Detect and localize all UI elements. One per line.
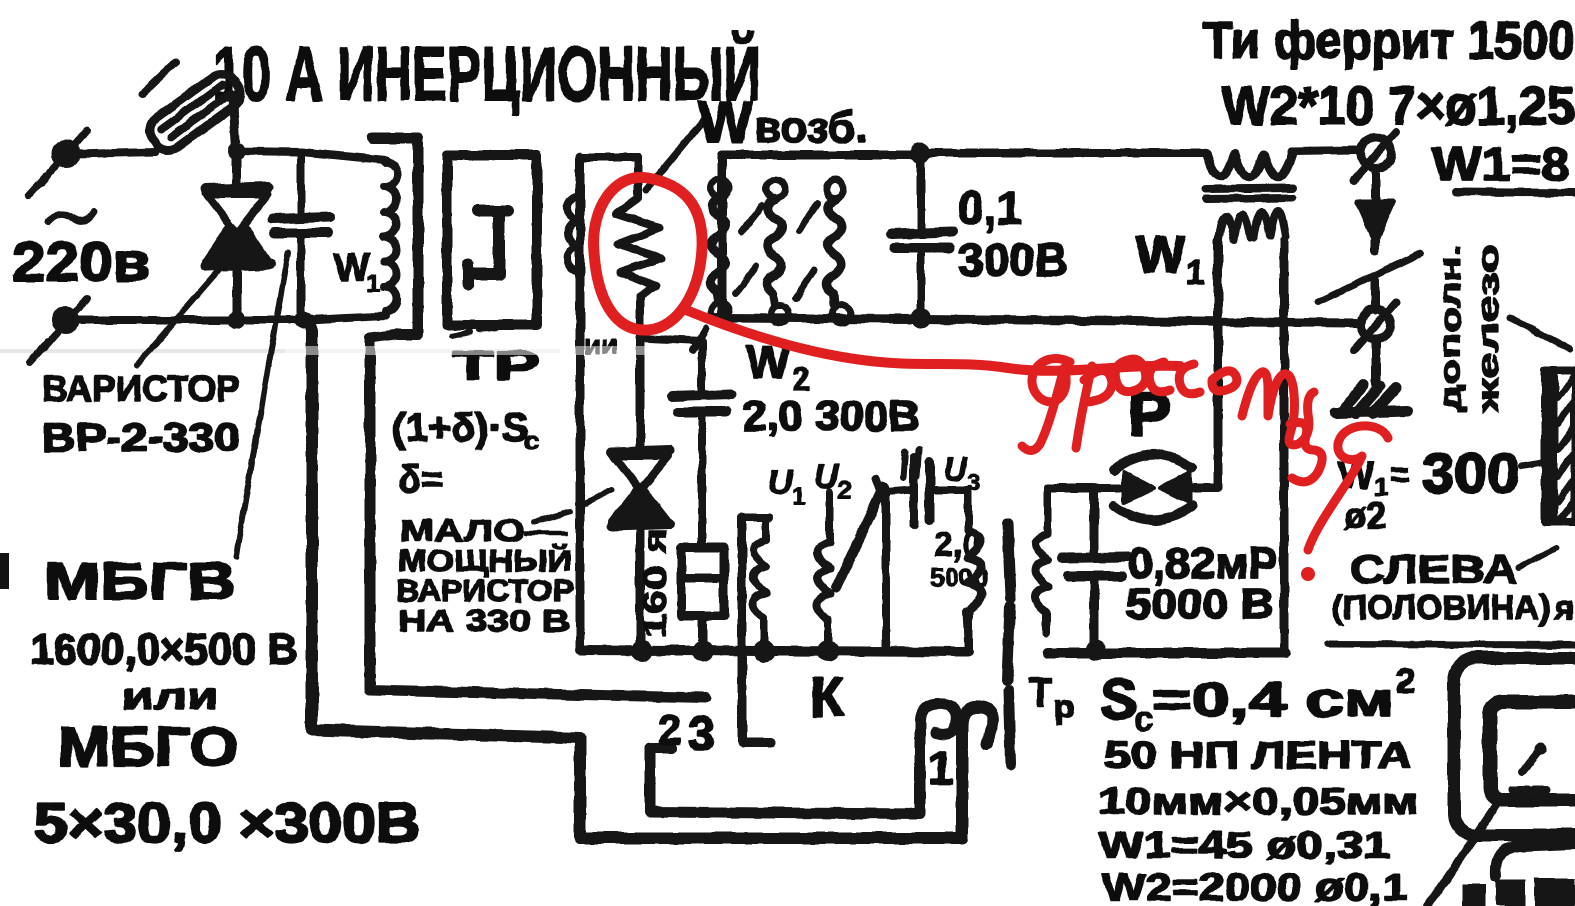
svg-text:0,1: 0,1 bbox=[958, 182, 1022, 234]
svg-text:10 А ИНЕРЦИОННЫЙ: 10 А ИНЕРЦИОННЫЙ bbox=[213, 31, 761, 117]
svg-text:К: К bbox=[810, 665, 845, 728]
svg-text:1600,0×500 В: 1600,0×500 В bbox=[30, 625, 298, 674]
svg-text:W1=45 ø0,31: W1=45 ø0,31 bbox=[1098, 825, 1390, 867]
svg-text:3: 3 bbox=[688, 708, 715, 761]
svg-text:МБГО: МБГО bbox=[58, 715, 238, 778]
svg-text:железо: железо bbox=[1472, 244, 1505, 414]
svg-text:W2*10 7×ø1,25: W2*10 7×ø1,25 bbox=[1222, 76, 1575, 136]
svg-text:возб.: возб. bbox=[754, 103, 867, 152]
svg-text:=0,4 см: =0,4 см bbox=[1152, 674, 1394, 727]
svg-text:50 НП ЛЕНТА: 50 НП ЛЕНТА bbox=[1104, 735, 1412, 777]
svg-text:или: или bbox=[122, 676, 218, 718]
svg-text:10мм×0,05мм: 10мм×0,05мм bbox=[1098, 781, 1418, 823]
svg-text:5×30,0 ×300В: 5×30,0 ×300В bbox=[34, 791, 420, 854]
svg-text:W: W bbox=[698, 90, 753, 155]
svg-text:2: 2 bbox=[658, 706, 681, 753]
svg-text:2: 2 bbox=[1396, 662, 1415, 700]
svg-text:c: c bbox=[1134, 700, 1153, 738]
svg-text:СЛЕВА: СЛЕВА bbox=[1350, 548, 1518, 592]
svg-text:1: 1 bbox=[366, 268, 380, 298]
svg-text:1: 1 bbox=[1186, 254, 1205, 292]
svg-text:W1=8: W1=8 bbox=[1432, 138, 1570, 190]
svg-text:δ=: δ= bbox=[398, 459, 443, 501]
svg-text:S: S bbox=[1100, 667, 1137, 730]
svg-text:(ПОЛОВИНА): (ПОЛОВИНА) bbox=[1332, 589, 1550, 627]
svg-text:5000 В: 5000 В bbox=[1126, 580, 1274, 627]
svg-text:W: W bbox=[1136, 226, 1186, 284]
svg-text:Т: Т bbox=[1028, 671, 1052, 715]
svg-text:Ти феррит 1500: Ти феррит 1500 bbox=[1203, 12, 1575, 70]
svg-text:МБГВ: МБГВ bbox=[44, 553, 236, 611]
svg-text:р: р bbox=[1054, 688, 1075, 726]
svg-text:2: 2 bbox=[792, 361, 810, 397]
svg-text:НА 330 В: НА 330 В bbox=[398, 603, 570, 638]
svg-text:W2=2000 ø0,1: W2=2000 ø0,1 bbox=[1102, 867, 1408, 906]
svg-text:ВАРИСТОР: ВАРИСТОР bbox=[42, 368, 240, 409]
svg-text:дополн.: дополн. bbox=[1434, 244, 1467, 412]
svg-text:ø2: ø2 bbox=[1344, 495, 1386, 536]
svg-text:2,0 300В: 2,0 300В bbox=[742, 392, 920, 439]
svg-text:160 я: 160 я bbox=[637, 528, 673, 638]
svg-text:W: W bbox=[334, 247, 370, 289]
svg-text:1: 1 bbox=[928, 742, 954, 794]
svg-text:(1+δ)·S: (1+δ)·S bbox=[392, 406, 529, 450]
svg-text:ии: ии bbox=[584, 329, 618, 360]
svg-text:я: я bbox=[1553, 589, 1574, 627]
svg-text:300В: 300В bbox=[958, 234, 1068, 286]
svg-text:300: 300 bbox=[1422, 441, 1520, 504]
svg-text:U: U bbox=[944, 451, 968, 487]
svg-text:ВР-2-330: ВР-2-330 bbox=[42, 416, 240, 460]
svg-text:220в: 220в bbox=[12, 230, 150, 293]
svg-text:c: c bbox=[524, 425, 540, 456]
svg-text:U: U bbox=[768, 464, 794, 502]
svg-text:2: 2 bbox=[838, 477, 851, 504]
svg-text:=: = bbox=[1390, 456, 1410, 494]
svg-text:1: 1 bbox=[792, 483, 805, 510]
